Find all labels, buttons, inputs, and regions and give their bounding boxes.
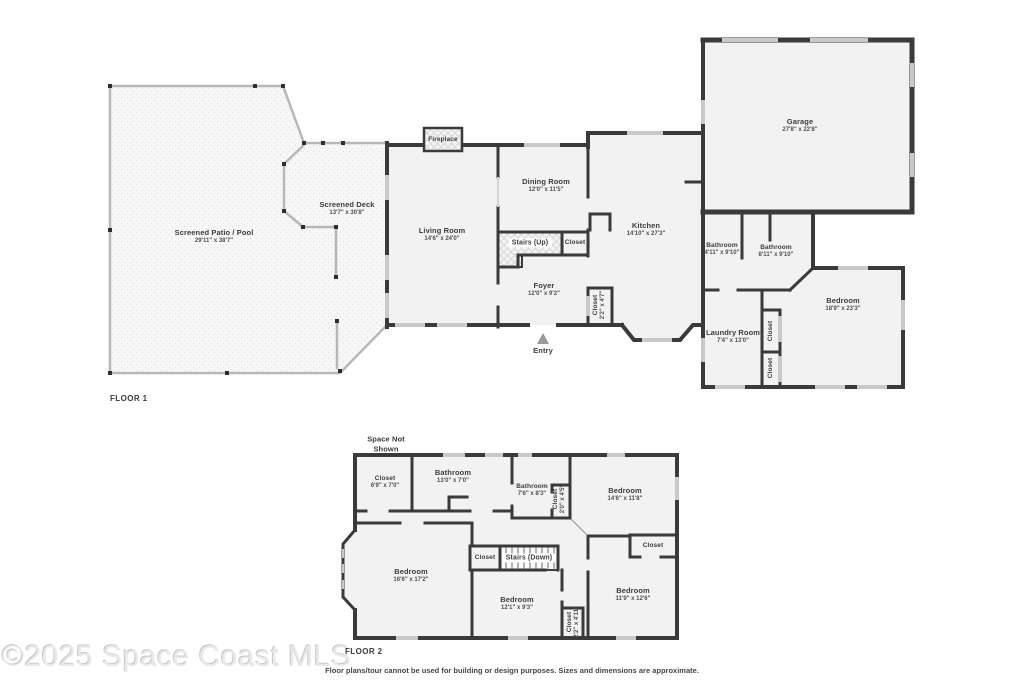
room-label-kitchen: Kitchen 14'10" x 27'3" — [627, 221, 666, 239]
room-label-bedroom-se-f2: Bedroom 11'9" x 12'6" — [616, 586, 651, 604]
room-label-bathroom-small-f2: Bathroom 7'6" x 8'3" — [516, 483, 548, 499]
entry-arrow-icon — [537, 333, 549, 344]
room-label-living-room: Living Room 14'6" x 24'0" — [419, 226, 466, 244]
room-label-bedroom-s-f2: Bedroom 12'1" x 9'3" — [500, 595, 534, 613]
room-label-dining-room: Dining Room 12'0" x 11'5" — [522, 177, 570, 195]
label-bathroom-closet-f2: Closet 2'0" x 4'5" — [552, 485, 568, 514]
label-hall-closet-f2: Closet 2'2" x 4'11" — [566, 606, 582, 638]
floorplan-canvas: Screened Patio / Pool 29'11" x 38'7" Scr… — [0, 0, 1024, 683]
room-label-garage: Garage 27'8" x 22'8" — [782, 117, 817, 135]
label-stairs-closet: Closet — [565, 239, 585, 247]
disclaimer-text: Floor plans/tour cannot be used for buil… — [0, 666, 1024, 675]
room-label-foyer: Foyer 12'0" x 9'2" — [528, 281, 560, 299]
label-closet-top-left: Closet 6'9" x 7'0" — [371, 475, 400, 491]
room-label-bedroom-f1: Bedroom 18'9" x 23'3" — [825, 296, 860, 314]
room-label-bedroom-w-f2: Bedroom 16'6" x 17'2" — [393, 567, 428, 585]
label-fireplace: Fireplace — [428, 136, 457, 144]
label-entry: Entry — [533, 346, 553, 356]
room-label-bathroom-large: Bathroom 8'11" x 9'10" — [759, 244, 794, 260]
room-label-bathroom-small: Bathroom 4'11" x 9'10" — [705, 242, 740, 258]
floor1-tag: FLOOR 1 — [110, 394, 147, 403]
label-space-not-shown: Space Not Shown — [357, 434, 415, 454]
label-closet-top-right-f2: Closet — [643, 542, 663, 550]
floor2-tag: FLOOR 2 — [345, 647, 382, 656]
label-closet-a: Closet — [767, 321, 775, 341]
room-label-screened-deck: Screened Deck 13'7" x 30'8" — [319, 200, 374, 218]
floorplan-drawing — [0, 0, 1024, 683]
room-label-screened-patio: Screened Patio / Pool 29'11" x 38'7" — [175, 228, 254, 246]
label-stairs-closet-f2: Closet — [475, 554, 495, 562]
room-label-bathroom-long-f2: Bathroom 13'0" x 7'0" — [435, 468, 471, 486]
bedroom-wing-area — [703, 213, 903, 387]
label-closet-b: Closet — [767, 358, 775, 378]
room-label-bedroom-ne-f2: Bedroom 14'6" x 11'8" — [608, 486, 643, 504]
room-label-laundry: Laundry Room 7'4" x 13'0" — [706, 328, 760, 346]
label-stairs-up: Stairs (Up) — [509, 238, 552, 247]
label-stairs-down: Stairs (Down) — [503, 553, 555, 562]
label-foyer-closet: Closet 2'2" x 4'7" — [592, 291, 608, 320]
